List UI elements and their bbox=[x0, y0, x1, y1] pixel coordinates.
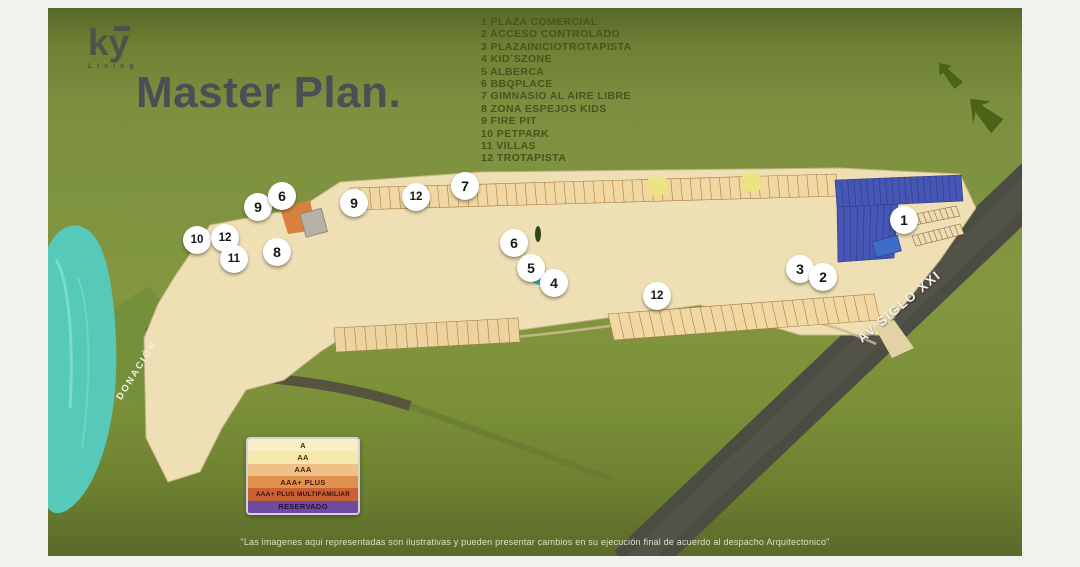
image-frame: ky Living Master Plan. 1 PLAZA COMERCIAL… bbox=[0, 0, 1080, 567]
map-marker-12: 12 bbox=[402, 183, 430, 211]
amenity-item: 1 PLAZA COMERCIAL bbox=[481, 16, 632, 28]
brand-logo-text: ky bbox=[88, 24, 139, 61]
category-legend: AAAAAAAAA+ PLUSAAA+ PLUS MULTIFAMILIARRE… bbox=[246, 437, 360, 515]
map-marker-11: 11 bbox=[220, 245, 248, 273]
category-row: RESERVADO bbox=[248, 501, 358, 513]
map-marker-10: 10 bbox=[183, 226, 211, 254]
category-row: A bbox=[248, 439, 358, 451]
map-marker-1: 1 bbox=[890, 206, 918, 234]
south-boundary bbox=[410, 406, 614, 480]
disclaimer-text: "Las imagenes aqui representadas son ilu… bbox=[48, 537, 1022, 547]
map-marker-8: 8 bbox=[263, 238, 291, 266]
amenity-item: 8 ZONA ESPEJOS KIDS bbox=[481, 103, 632, 115]
page-title: Master Plan. bbox=[136, 68, 401, 118]
category-row: AAA+ PLUS bbox=[248, 476, 358, 488]
map-marker-12: 12 bbox=[643, 282, 671, 310]
map-marker-2: 2 bbox=[809, 263, 837, 291]
category-row: AAA+ PLUS MULTIFAMILIAR bbox=[248, 488, 358, 500]
amenity-item: 7 GIMNASIO AL AIRE LIBRE bbox=[481, 90, 632, 102]
cypress-tree bbox=[535, 226, 541, 242]
amenity-item: 5 ALBERCA bbox=[481, 66, 632, 78]
amenity-item: 6 BBQPLACE bbox=[481, 78, 632, 90]
map-marker-6: 6 bbox=[500, 229, 528, 257]
amenity-item: 3 PLAZAINICIOTROTAPISTA bbox=[481, 41, 632, 53]
amenity-item: 2 ACCESO CONTROLADO bbox=[481, 28, 632, 40]
river bbox=[48, 226, 116, 514]
amenity-item: 4 KID´SZONE bbox=[481, 53, 632, 65]
amenity-item: 9 FIRE PIT bbox=[481, 115, 632, 127]
map-marker-4: 4 bbox=[540, 269, 568, 297]
category-row: AA bbox=[248, 451, 358, 463]
logo-macron-bar bbox=[114, 26, 130, 31]
brand-logo: ky Living bbox=[88, 24, 139, 70]
brand-logo-subtext: Living bbox=[88, 63, 139, 70]
category-row: AAA bbox=[248, 464, 358, 476]
amenity-item: 12 TROTAPISTA bbox=[481, 152, 632, 164]
masterplan-canvas: ky Living Master Plan. 1 PLAZA COMERCIAL… bbox=[48, 8, 1022, 556]
map-marker-7: 7 bbox=[451, 172, 479, 200]
amenity-item: 10 PETPARK bbox=[481, 128, 632, 140]
map-marker-6: 6 bbox=[268, 182, 296, 210]
map-marker-9: 9 bbox=[340, 189, 368, 217]
amenities-legend: 1 PLAZA COMERCIAL2 ACCESO CONTROLADO3 PL… bbox=[481, 16, 632, 165]
amenity-item: 11 VILLAS bbox=[481, 140, 632, 152]
north-arrows bbox=[933, 58, 1007, 139]
